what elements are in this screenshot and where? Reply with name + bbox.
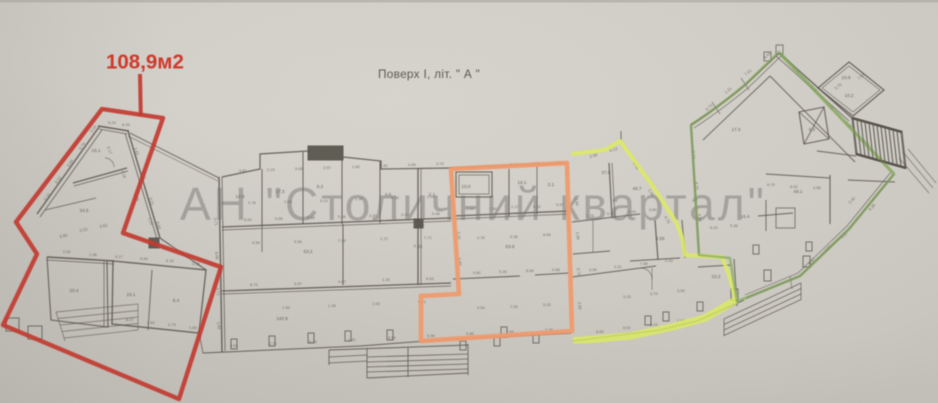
svg-text:3.11: 3.11 (614, 264, 622, 269)
svg-text:3.94: 3.94 (589, 267, 598, 272)
svg-text:9.17: 9.17 (115, 254, 124, 259)
svg-text:5.67: 5.67 (294, 281, 303, 286)
svg-text:6.16: 6.16 (166, 258, 175, 263)
svg-text:9.83: 9.83 (295, 166, 304, 171)
svg-text:15.1: 15.1 (92, 148, 101, 153)
svg-text:1.28: 1.28 (328, 303, 337, 308)
svg-text:9.54: 9.54 (477, 305, 486, 310)
svg-text:7.25: 7.25 (338, 238, 347, 243)
svg-text:1.81: 1.81 (348, 337, 357, 342)
svg-text:5.20: 5.20 (543, 302, 552, 307)
svg-text:8.4: 8.4 (173, 298, 180, 303)
svg-text:6.23: 6.23 (650, 322, 659, 327)
svg-text:8.79: 8.79 (767, 182, 776, 187)
svg-text:2.79: 2.79 (168, 322, 177, 327)
svg-text:8.63: 8.63 (426, 276, 435, 281)
svg-text:3.73: 3.73 (436, 161, 445, 166)
svg-text:7.02: 7.02 (414, 244, 423, 249)
svg-text:1.53: 1.53 (372, 301, 381, 306)
svg-text:4.63: 4.63 (147, 320, 156, 325)
svg-text:9.56: 9.56 (294, 239, 303, 244)
svg-text:3.23: 3.23 (623, 294, 632, 299)
svg-text:АН "Столичний квартал": АН "Столичний квартал" (180, 178, 767, 230)
svg-text:2.72: 2.72 (269, 341, 278, 346)
svg-text:1.38: 1.38 (89, 252, 98, 257)
svg-text:8.27: 8.27 (126, 317, 135, 322)
svg-text:3.53: 3.53 (677, 288, 686, 293)
svg-text:15.1: 15.1 (127, 292, 136, 297)
svg-text:8.60: 8.60 (596, 329, 605, 334)
svg-text:1.72: 1.72 (380, 236, 389, 241)
svg-text:7.71: 7.71 (424, 235, 433, 240)
svg-text:2.53: 2.53 (230, 343, 239, 348)
svg-text:0.68: 0.68 (552, 267, 561, 272)
svg-text:4.81: 4.81 (239, 168, 248, 173)
svg-text:2.65: 2.65 (577, 302, 583, 311)
svg-text:4.87: 4.87 (338, 279, 347, 284)
svg-text:140.9: 140.9 (276, 316, 288, 321)
svg-text:1.25: 1.25 (382, 277, 391, 282)
svg-text:1.80: 1.80 (352, 164, 361, 169)
svg-text:3.57: 3.57 (323, 165, 332, 170)
svg-text:0.89: 0.89 (408, 162, 417, 167)
svg-text:6.61: 6.61 (623, 325, 632, 330)
svg-text:2.23: 2.23 (267, 167, 276, 172)
svg-text:7.85: 7.85 (640, 261, 649, 266)
svg-text:2.43: 2.43 (665, 258, 674, 263)
svg-text:10.2: 10.2 (845, 93, 854, 98)
svg-text:17.3: 17.3 (732, 127, 741, 132)
svg-text:63.2: 63.2 (304, 249, 313, 254)
svg-text:3.70: 3.70 (650, 291, 659, 296)
svg-text:5.98: 5.98 (427, 333, 436, 338)
svg-text:3.71: 3.71 (576, 268, 582, 277)
svg-text:8.89: 8.89 (526, 268, 535, 273)
svg-text:0.82: 0.82 (63, 249, 72, 254)
svg-text:7.54: 7.54 (510, 304, 519, 309)
svg-text:Поверх І, літ. " А ": Поверх І, літ. " А " (378, 67, 480, 81)
svg-text:9.50: 9.50 (388, 335, 397, 340)
svg-text:5.26: 5.26 (499, 269, 508, 274)
svg-text:5.29: 5.29 (108, 120, 117, 125)
svg-text:63.8: 63.8 (506, 244, 515, 249)
svg-text:1.82: 1.82 (380, 163, 389, 168)
svg-text:8.56: 8.56 (543, 232, 552, 237)
svg-text:48.1: 48.1 (794, 189, 803, 194)
svg-text:9.82: 9.82 (473, 270, 482, 275)
svg-text:3.88: 3.88 (813, 185, 822, 190)
svg-text:22.2: 22.2 (712, 274, 721, 279)
svg-text:7.49: 7.49 (282, 305, 291, 310)
svg-text:0.36: 0.36 (510, 234, 519, 239)
svg-text:5.2: 5.2 (809, 127, 816, 132)
svg-text:1.59: 1.59 (575, 232, 581, 241)
svg-text:108,9м2: 108,9м2 (106, 51, 184, 74)
svg-text:6.93: 6.93 (122, 122, 131, 127)
svg-text:10.9: 10.9 (842, 75, 851, 80)
svg-text:4.54: 4.54 (252, 240, 261, 245)
svg-text:1.83: 1.83 (189, 325, 198, 330)
svg-text:34.5: 34.5 (80, 208, 89, 213)
svg-text:2.76: 2.76 (477, 235, 486, 240)
svg-text:20.4: 20.4 (70, 288, 79, 293)
svg-text:3.59: 3.59 (656, 236, 665, 241)
svg-text:6.15: 6.15 (309, 339, 318, 344)
svg-text:9.84: 9.84 (140, 256, 149, 261)
svg-text:37.8: 37.8 (602, 170, 611, 175)
svg-text:8.73: 8.73 (250, 282, 259, 287)
